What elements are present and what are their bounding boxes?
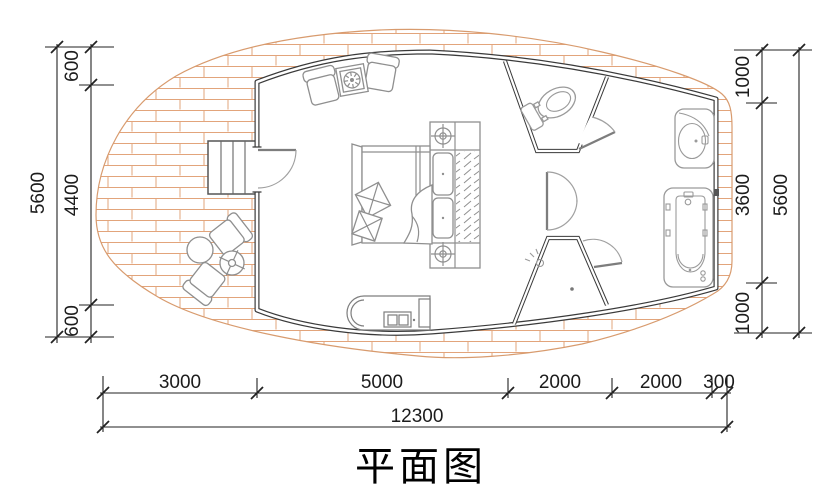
- dim-bottom-seg: 3000: [159, 372, 201, 393]
- bed-icon: [352, 144, 432, 245]
- floor-plan-page: 5600 600 4400 600 1000 3600 1000 5600 30…: [0, 0, 837, 496]
- floor-plan-drawing: 5600 600 4400 600 1000 3600 1000 5600 30…: [0, 0, 837, 496]
- dimension-right: 1000 3600 1000 5600: [733, 44, 812, 339]
- vanity-icon: [675, 109, 714, 168]
- dim-bottom-seg: 2000: [640, 372, 682, 393]
- outdoor-table-icon: [187, 237, 213, 263]
- wall-fixture-icon: [714, 189, 719, 196]
- dim-bottom-seg: 2000: [539, 372, 581, 393]
- side-table-icon: [336, 64, 368, 96]
- dim-right-seg: 1000: [733, 292, 754, 334]
- bathtub-icon: [664, 188, 719, 287]
- dim-bottom-overall: 12300: [391, 406, 444, 427]
- dim-bottom-seg: 5000: [361, 372, 403, 393]
- dim-right-overall: 5600: [771, 174, 792, 216]
- dim-right-seg: 3600: [733, 174, 754, 216]
- drawing-title: 平面图: [355, 445, 487, 489]
- dimension-bottom: 3000 5000 2000 2000 300 12300: [97, 372, 735, 433]
- dim-left-overall: 5600: [28, 172, 49, 214]
- dim-left-seg: 600: [62, 50, 83, 82]
- dim-left-seg: 4400: [62, 174, 83, 216]
- headboard-platform: [430, 122, 480, 268]
- cabinet-icon: [347, 296, 430, 330]
- dim-bottom-seg: 300: [703, 372, 735, 393]
- dim-left-seg: 600: [62, 305, 83, 337]
- wardrobe-hatch: [456, 151, 479, 242]
- entry-stairs: [208, 141, 257, 194]
- dim-right-seg: 1000: [733, 56, 754, 98]
